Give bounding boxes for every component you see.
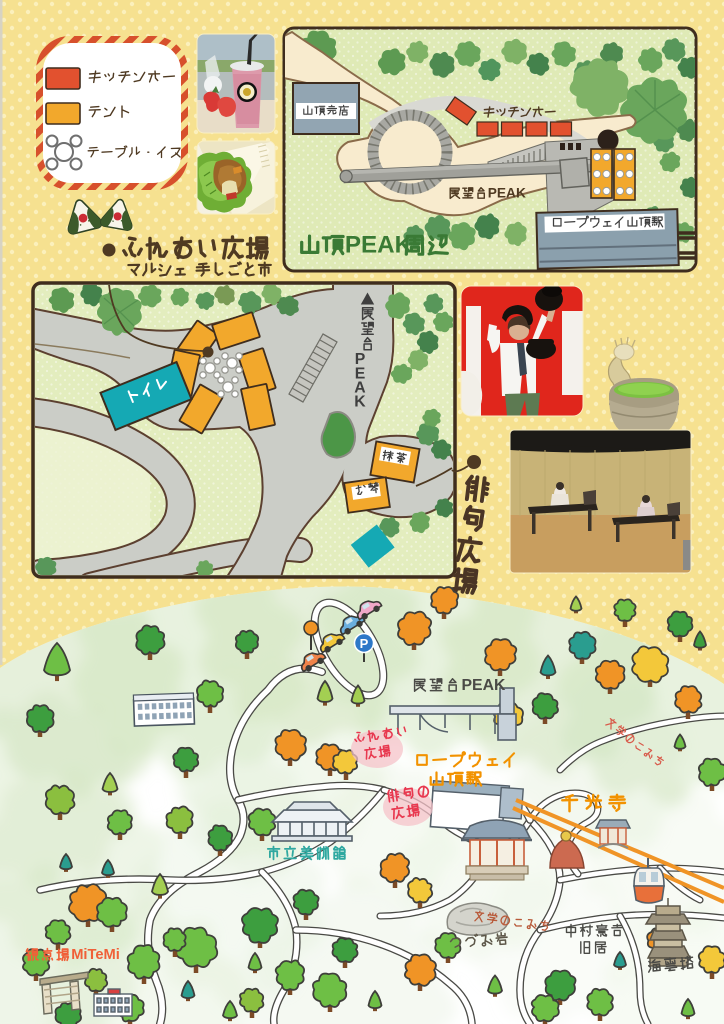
svg-text:PEAK: PEAK <box>488 185 526 200</box>
svg-text:K: K <box>354 394 366 411</box>
svg-text:PEAK: PEAK <box>462 677 506 694</box>
svg-text:MiTeMi: MiTeMi <box>71 947 120 963</box>
svg-text:P: P <box>360 636 369 651</box>
svg-text:PEAK: PEAK <box>345 231 413 258</box>
